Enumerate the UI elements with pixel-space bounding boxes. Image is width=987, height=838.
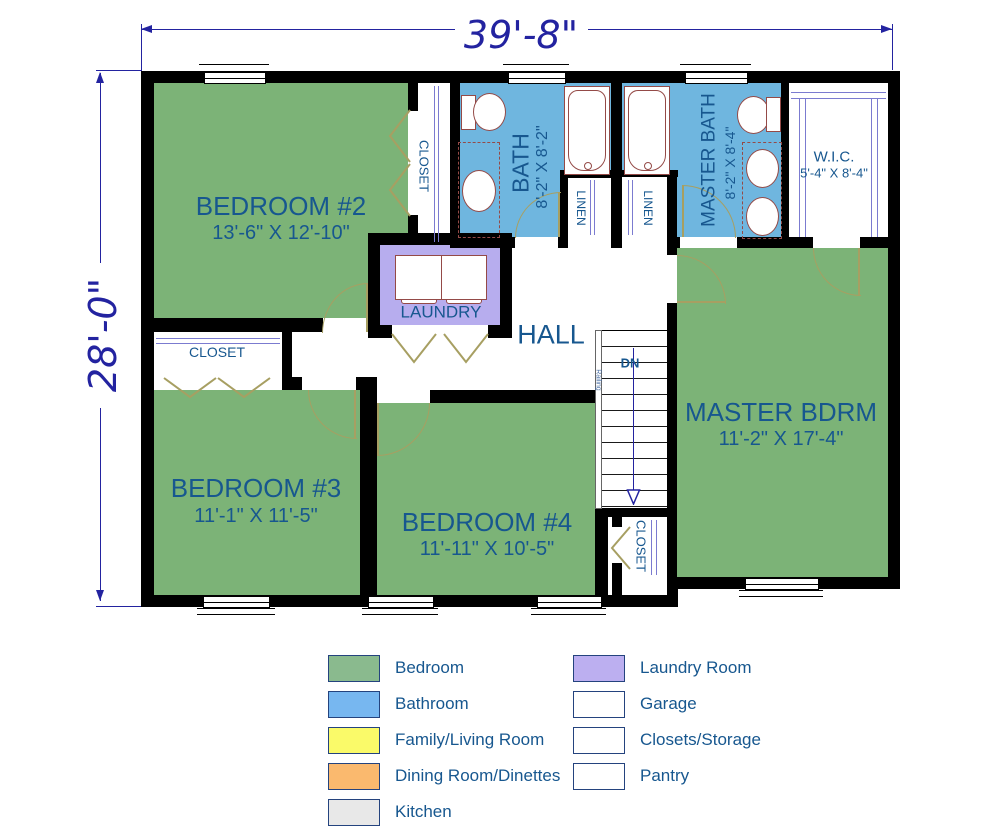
laundry-label: LAUNDRY: [401, 304, 482, 321]
legend-swatch: [328, 727, 380, 754]
bedroom3-dims: 11'-1" X 11'-5": [194, 506, 317, 526]
arrow-up-icon: [96, 72, 104, 83]
wall-segment: [368, 233, 380, 338]
bedroom3-closet-label: CLOSET: [189, 345, 245, 359]
legend-label: Bedroom: [395, 658, 464, 678]
bathtub-basin: [568, 90, 606, 171]
width-dimension-text: 39'-8": [456, 13, 586, 57]
wall-segment: [611, 83, 622, 245]
bifold-door-icon: [386, 108, 412, 218]
wall-segment: [488, 325, 512, 338]
bathtub-icon: [624, 86, 670, 175]
floor-plan: 39'-8" 28'-0": [0, 0, 987, 838]
window: [368, 596, 434, 608]
hall-label: HALL: [517, 322, 585, 349]
closet-rod: [434, 86, 439, 242]
stair-down-arrow-icon: [626, 489, 641, 505]
bedroom2-closet-label: CLOSET: [418, 140, 431, 192]
railing-label: Railing: [595, 369, 602, 390]
bath-dims: 8'-2" X 8'-2": [535, 125, 551, 208]
wall-segment: [611, 237, 622, 248]
wic-label: W.I.C.: [814, 150, 855, 165]
toilet-bowl-icon: [473, 93, 506, 131]
wall-segment: [667, 577, 678, 597]
bathtub-icon: [564, 86, 610, 175]
wall-segment: [860, 237, 900, 248]
closet-rod: [871, 99, 878, 237]
top-dimension-line: [588, 29, 893, 30]
left-dimension-line: [100, 408, 101, 601]
legend-label: Garage: [640, 694, 697, 714]
legend-swatch: [328, 691, 380, 718]
left-dimension-line: [100, 73, 101, 263]
bedroom2-label: BEDROOM #2: [196, 193, 367, 219]
window: [685, 72, 748, 84]
window-sill: [503, 64, 569, 72]
legend-label: Kitchen: [395, 802, 452, 822]
legend-swatch: [573, 691, 625, 718]
legend-swatch: [328, 655, 380, 682]
stair-railing: [595, 330, 602, 509]
wall-segment: [558, 237, 568, 248]
window: [204, 72, 266, 84]
sink-icon: [462, 170, 496, 212]
bathtub-basin: [628, 90, 666, 171]
arrow-right-icon: [881, 25, 892, 33]
legend-label: Closets/Storage: [640, 730, 761, 750]
arrow-left-icon: [141, 25, 152, 33]
bedroom4-label: BEDROOM #4: [402, 509, 573, 535]
closet-rod: [651, 520, 657, 575]
stairs-closet-label: CLOSET: [635, 520, 648, 572]
door-leaf: [677, 301, 725, 303]
legend-label: Bathroom: [395, 694, 469, 714]
legend-swatch: [328, 763, 380, 790]
legend-item: Laundry Room: [573, 655, 903, 681]
window: [745, 578, 819, 590]
bedroom2-dims: 13'-6" X 12'-10": [212, 223, 349, 243]
left-dimension-extension: [96, 606, 142, 607]
tub-drain-icon: [584, 162, 592, 170]
legend-swatch: [573, 655, 625, 682]
door-leaf: [558, 192, 560, 237]
legend-swatch: [573, 763, 625, 790]
height-dimension-text: 28'-0": [81, 270, 125, 400]
legend-column-2: Laundry Room Garage Closets/Storage Pant…: [573, 655, 903, 799]
bifold-door-icon: [390, 332, 490, 366]
bedroom4-dims: 11'-11" X 10'-5": [420, 539, 555, 559]
bedroom3-label: BEDROOM #3: [171, 475, 342, 501]
wall-segment: [560, 170, 568, 245]
top-dimension-extension: [892, 24, 893, 70]
stairs-down-label: DN: [621, 357, 640, 370]
wall-segment: [141, 318, 323, 332]
arrow-down-icon: [96, 590, 104, 601]
window-sill: [362, 608, 438, 615]
window-sill: [531, 608, 606, 615]
wall-segment: [282, 377, 302, 390]
window: [508, 72, 566, 84]
wall-segment: [500, 233, 512, 338]
window-sill: [199, 64, 269, 72]
wall-segment: [888, 71, 900, 589]
bifold-door-icon: [162, 376, 272, 400]
closet-rod: [791, 92, 886, 99]
wall-segment: [667, 177, 677, 245]
top-dimension-line: [141, 29, 455, 30]
door-leaf: [682, 185, 684, 237]
wall-segment: [781, 83, 789, 248]
legend-item: Pantry: [573, 763, 903, 789]
wall-segment: [430, 390, 600, 403]
bath-label: BATH: [510, 133, 533, 193]
legend-label: Laundry Room: [640, 658, 752, 678]
left-dimension-extension: [96, 70, 142, 71]
legend-item: Closets/Storage: [573, 727, 903, 753]
wall-segment: [141, 71, 154, 607]
linen-shelf-line: [628, 180, 633, 235]
tub-drain-icon: [644, 162, 652, 170]
master-bedroom-dims: 11'-2" X 17'-4": [719, 429, 844, 449]
door-leaf: [366, 283, 368, 332]
window-sill: [197, 608, 275, 615]
sink-icon: [746, 197, 779, 236]
bifold-door-icon: [608, 525, 632, 571]
wall-segment: [667, 237, 680, 248]
door-leaf: [377, 403, 379, 455]
window: [203, 596, 270, 608]
sink-icon: [746, 149, 779, 188]
wall-segment: [789, 237, 813, 248]
linen-label: LINEN: [642, 190, 654, 225]
wic-dims: 5'-4" X 8'-4": [800, 167, 868, 180]
wall-segment: [667, 303, 677, 577]
linen-label: LINEN: [575, 190, 587, 225]
window: [537, 596, 602, 608]
wall-segment: [408, 83, 418, 111]
legend-swatch: [573, 727, 625, 754]
door-leaf: [858, 248, 860, 295]
legend-label: Dining Room/Dinettes: [395, 766, 560, 786]
washer-dryer-icon: [395, 255, 487, 300]
master-bath-dims: 8'-2" X 8'-4": [723, 127, 737, 200]
window-sill: [680, 64, 751, 72]
wall-segment: [368, 325, 392, 338]
master-bedroom-label: MASTER BDRM: [685, 399, 877, 425]
toilet-tank-icon: [766, 97, 781, 132]
legend-item: Kitchen: [328, 799, 658, 825]
legend-label: Family/Living Room: [395, 730, 544, 750]
legend-label: Pantry: [640, 766, 689, 786]
legend-item: Garage: [573, 691, 903, 717]
wall-segment: [667, 248, 677, 255]
linen-shelf-line: [590, 180, 595, 235]
wall-segment: [360, 377, 377, 595]
window-sill: [739, 590, 823, 597]
legend-swatch: [328, 799, 380, 826]
master-bath-label: MASTER BATH: [700, 93, 719, 227]
door-leaf: [354, 390, 356, 438]
